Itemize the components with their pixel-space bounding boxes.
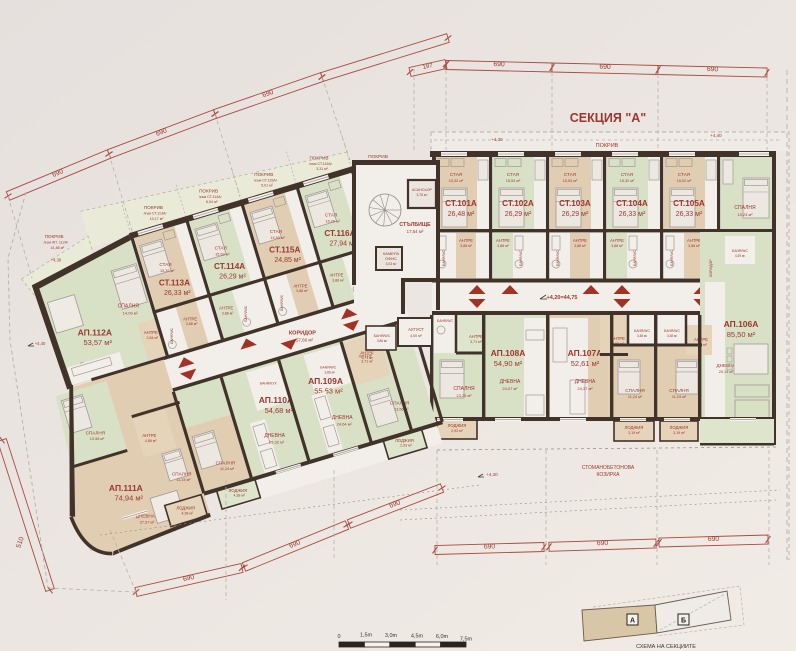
svg-text:СТЪЛБИЩЕ: СТЪЛБИЩЕ — [399, 222, 431, 228]
svg-text:85,50 м²: 85,50 м² — [727, 330, 756, 339]
svg-text:ПОКРИВ: ПОКРИВ — [596, 143, 619, 149]
svg-text:10,17 м²: 10,17 м² — [150, 217, 164, 221]
svg-text:СЕКЦИЯ "А": СЕКЦИЯ "А" — [570, 111, 647, 125]
svg-text:14,09 м²: 14,09 м² — [123, 310, 139, 315]
svg-text:СТАЯ: СТАЯ — [270, 229, 282, 234]
svg-text:2,84 м²: 2,84 м² — [146, 336, 158, 340]
svg-text:ЛОДЖИЯ: ЛОДЖИЯ — [229, 488, 248, 493]
svg-text:3,19 м²: 3,19 м² — [673, 431, 685, 435]
svg-text:20,14 м²: 20,14 м² — [719, 370, 734, 374]
svg-text:СТАЯ: СТАЯ — [564, 172, 576, 177]
svg-text:АП.110А: АП.110А — [259, 395, 293, 405]
svg-text:СПАЛНЯ: СПАЛНЯ — [216, 460, 235, 465]
svg-text:АП.112А: АП.112А — [78, 327, 112, 337]
svg-text:ПОКРИВ: ПОКРИВ — [309, 156, 328, 161]
svg-text:26,29 м²: 26,29 м² — [562, 211, 589, 218]
svg-text:3,31 м²: 3,31 м² — [316, 167, 328, 171]
svg-text:3,48 м²: 3,48 м² — [667, 334, 677, 338]
svg-text:СТ.103А: СТ.103А — [559, 199, 591, 208]
svg-text:3,88 м²: 3,88 м² — [296, 289, 308, 293]
svg-text:3,86 м²: 3,86 м² — [325, 371, 335, 375]
svg-text:7,5m: 7,5m — [460, 637, 473, 643]
svg-text:АНТРЕ: АНТРЕ — [610, 238, 624, 243]
svg-text:3,88 м²: 3,88 м² — [460, 244, 472, 248]
svg-text:4,38 м²: 4,38 м² — [233, 494, 245, 498]
svg-text:АНТРЕ: АНТРЕ — [496, 238, 510, 243]
svg-text:24,37 м²: 24,37 м² — [577, 386, 593, 391]
svg-text:СТ.102А: СТ.102А — [502, 199, 534, 208]
svg-text:СПАЛНЯ: СПАЛНЯ — [86, 430, 105, 435]
svg-text:690: 690 — [484, 543, 496, 550]
svg-text:15,32 м²: 15,32 м² — [160, 269, 175, 273]
svg-text:52,61 м²: 52,61 м² — [571, 359, 600, 368]
svg-text:СХЕМА НА СЕКЦИИТЕ: СХЕМА НА СЕКЦИИТЕ — [636, 644, 696, 650]
svg-text:3,0m: 3,0m — [385, 633, 398, 639]
svg-text:13,58 м²: 13,58 м² — [90, 437, 105, 441]
svg-text:5,01 м²: 5,01 м² — [261, 184, 273, 188]
svg-text:СТ.113А: СТ.113А — [159, 278, 190, 287]
svg-text:26,29 м²: 26,29 м² — [505, 211, 532, 218]
svg-text:15,53 м²: 15,53 м² — [506, 179, 521, 183]
svg-text:16,09 м²: 16,09 м² — [326, 219, 341, 223]
svg-text:15,53 м²: 15,53 м² — [215, 252, 230, 256]
svg-text:АП.109А: АП.109А — [308, 376, 343, 386]
svg-text:4,38 м²: 4,38 м² — [181, 511, 193, 515]
svg-text:6,0m: 6,0m — [436, 634, 449, 640]
svg-text:13,29 м²: 13,29 м² — [456, 393, 472, 398]
svg-text:АНТРЕ: АНТРЕ — [687, 238, 701, 243]
svg-text:ДНЕВНА: ДНЕВНА — [575, 379, 596, 385]
svg-text:ЛОДЖИЯ: ЛОДЖИЯ — [395, 438, 414, 443]
svg-text:СПАЛНЯ: СПАЛНЯ — [734, 205, 756, 211]
svg-text:СТАЯ: СТАЯ — [450, 172, 462, 177]
svg-text:690: 690 — [708, 536, 720, 543]
svg-text:ЛОДЖИЯ: ЛОДЖИЯ — [670, 425, 689, 430]
svg-text:4,88 м²: 4,88 м² — [145, 439, 157, 443]
svg-text:АНТРЕ: АНТРЕ — [573, 238, 587, 243]
svg-text:БАНЯ/WC: БАНЯ/WC — [732, 249, 748, 253]
svg-text:АНТРЕ: АНТРЕ — [183, 316, 197, 321]
svg-text:АНТРЕ: АНТРЕ — [293, 283, 307, 288]
svg-text:+4,40: +4,40 — [710, 133, 722, 138]
svg-text:Б: Б — [681, 618, 686, 625]
svg-text:4,5m: 4,5m — [411, 634, 424, 640]
svg-text:25,32 м²: 25,32 м² — [269, 440, 285, 445]
svg-text:СПАЛНЯ: СПАЛНЯ — [172, 471, 191, 476]
svg-text:БАНЯ/КУХ: БАНЯ/КУХ — [260, 382, 277, 386]
svg-text:15,32 м²: 15,32 м² — [449, 179, 464, 183]
svg-text:11,24 м²: 11,24 м² — [176, 478, 191, 482]
svg-text:11,24 м²: 11,24 м² — [220, 467, 235, 471]
svg-text:СТОМАНОБЕТОНОВА: СТОМАНОБЕТОНОВА — [582, 465, 635, 471]
svg-text:3,48 м²: 3,48 м² — [637, 334, 647, 338]
svg-text:26,33 м²: 26,33 м² — [164, 290, 191, 297]
svg-text:ДНЕВНА: ДНЕВНА — [717, 363, 737, 368]
svg-text:СПАЛНЯ: СПАЛНЯ — [390, 401, 409, 406]
svg-text:26,33 м²: 26,33 м² — [619, 211, 646, 218]
svg-text:57,66 м²: 57,66 м² — [296, 337, 314, 342]
svg-text:СТАЯ: СТАЯ — [678, 172, 690, 177]
svg-text:БАНЯ/WC: БАНЯ/WC — [244, 305, 248, 321]
svg-text:АСАНСЬОР: АСАНСЬОР — [412, 188, 432, 192]
svg-text:+4,30: +4,30 — [486, 472, 498, 477]
svg-text:24,64 м²: 24,64 м² — [337, 422, 353, 427]
svg-text:ЛОДЖИЯ: ЛОДЖИЯ — [625, 425, 644, 430]
svg-text:БАНЯ/WC: БАНЯ/WC — [320, 366, 336, 370]
svg-text:КОЗИРКА: КОЗИРКА — [597, 472, 621, 478]
svg-text:26,29 м²: 26,29 м² — [219, 273, 246, 280]
svg-text:ПОКРИВ: ПОКРИВ — [144, 205, 163, 210]
svg-text:ДНЕВНА: ДНЕВНА — [332, 415, 353, 421]
svg-text:15,23 м²: 15,23 м² — [737, 212, 753, 217]
svg-text:3,88 м²: 3,88 м² — [688, 244, 700, 248]
svg-text:СТАЯ: СТАЯ — [621, 172, 633, 177]
svg-text:3,88 м²: 3,88 м² — [332, 278, 344, 282]
svg-text:74,94 м²: 74,94 м² — [114, 494, 143, 503]
svg-text:АП.108А: АП.108А — [491, 348, 526, 358]
svg-text:24,85 м²: 24,85 м² — [274, 257, 301, 264]
svg-text:АНТРЕ: АНТРЕ — [360, 350, 374, 355]
svg-text:0: 0 — [337, 634, 340, 640]
svg-text:+4,20=44,75: +4,20=44,75 — [547, 295, 578, 301]
svg-text:/към СТ.114А/: /към СТ.114А/ — [199, 195, 222, 199]
svg-text:4,00 м²: 4,00 м² — [410, 334, 422, 338]
svg-text:КОРИДОР: КОРИДОР — [289, 331, 316, 337]
svg-text:СТ.105А: СТ.105А — [673, 199, 705, 208]
svg-text:БАНЯ/WC: БАНЯ/WC — [442, 250, 446, 266]
svg-text:ЛОДЖИЯ: ЛОДЖИЯ — [448, 423, 467, 428]
svg-text:17,54 м²: 17,54 м² — [407, 229, 424, 234]
svg-text:БАНЯ/WC: БАНЯ/WC — [374, 334, 391, 338]
svg-text:КОРИДОР: КОРИДОР — [709, 259, 713, 277]
svg-text:СТ.114А: СТ.114А — [214, 262, 245, 271]
svg-text:АНТРЕ: АНТРЕ — [219, 306, 233, 311]
svg-text:54,68 м²: 54,68 м² — [265, 406, 294, 415]
svg-text:3,88 м²: 3,88 м² — [222, 311, 234, 315]
svg-text:4,39 м²: 4,39 м² — [735, 254, 745, 258]
svg-text:АНТРЕ: АНТРЕ — [469, 334, 483, 339]
svg-text:690: 690 — [597, 540, 609, 547]
svg-text:+4,40: +4,40 — [35, 341, 46, 346]
svg-text:/към СТ.113А/: /към СТ.113А/ — [144, 212, 167, 216]
svg-text:11,24 м²: 11,24 м² — [672, 395, 687, 399]
svg-text:/към СТ.116А/: /към СТ.116А/ — [309, 162, 332, 166]
svg-text:АНТРЕ: АНТРЕ — [459, 238, 473, 243]
svg-text:41,88 м²: 41,88 м² — [51, 246, 65, 250]
svg-text:24,07 м²: 24,07 м² — [502, 386, 518, 391]
svg-text:/към АП. 112А/: /към АП. 112А/ — [44, 241, 68, 245]
svg-text:3,88 м²: 3,88 м² — [497, 244, 509, 248]
svg-text:БАНЯ/WC: БАНЯ/WC — [280, 294, 284, 310]
svg-text:АП.106А: АП.106А — [724, 319, 759, 329]
svg-text:ПОКРИВ: ПОКРИВ — [368, 154, 388, 160]
svg-text:53,57 м²: 53,57 м² — [83, 338, 112, 347]
svg-text:690: 690 — [493, 61, 505, 68]
svg-text:БАНЯ/WC: БАНЯ/WC — [556, 250, 560, 266]
svg-text:26,33 м²: 26,33 м² — [676, 211, 703, 218]
svg-text:ЛОДЖИЯ: ЛОДЖИЯ — [176, 506, 195, 511]
svg-text:15,53 м²: 15,53 м² — [563, 179, 578, 183]
svg-text:15,32 м²: 15,32 м² — [620, 179, 635, 183]
svg-text:ДНЕВНА: ДНЕВНА — [264, 433, 285, 439]
svg-text:СТ.116А: СТ.116А — [324, 229, 355, 238]
svg-text:БАНЯ/WC: БАНЯ/WC — [670, 250, 674, 266]
svg-text:2,93 м²: 2,93 м² — [400, 444, 412, 448]
svg-text:А: А — [630, 618, 635, 625]
svg-text:3,86 м²: 3,86 м² — [377, 339, 387, 343]
svg-text:1,5m: 1,5m — [360, 633, 373, 639]
svg-text:АП.107А: АП.107А — [568, 348, 603, 358]
svg-text:3,88 м²: 3,88 м² — [574, 244, 586, 248]
svg-text:СТ.101А: СТ.101А — [445, 199, 477, 208]
svg-text:ОФИС: ОФИС — [385, 256, 397, 261]
svg-text:БАНЯ/WC: БАНЯ/WC — [437, 319, 453, 323]
svg-text:11,24 м²: 11,24 м² — [628, 395, 643, 399]
svg-text:АУГУСТ: АУГУСТ — [408, 327, 424, 332]
svg-text:БАНЯ/WC: БАНЯ/WC — [664, 329, 680, 333]
svg-text:26,48 м²: 26,48 м² — [448, 211, 475, 218]
svg-text:3,03 м²: 3,03 м² — [385, 262, 397, 266]
svg-text:СПАЛНЯ: СПАЛНЯ — [453, 386, 475, 392]
svg-text:+4,30: +4,30 — [491, 137, 503, 142]
svg-text:СПАЛНЯ: СПАЛНЯ — [118, 304, 140, 310]
svg-text:3,76 м²: 3,76 м² — [416, 193, 428, 197]
svg-text:14,93 м²: 14,93 м² — [270, 236, 285, 240]
svg-text:БАНЯ/WC: БАНЯ/WC — [519, 250, 523, 266]
svg-text:15,02 м²: 15,02 м² — [677, 179, 692, 183]
svg-text:СТ.115А: СТ.115А — [269, 245, 300, 254]
svg-text:СПАЛНЯ: СПАЛНЯ — [669, 388, 688, 393]
svg-text:6,54 м²: 6,54 м² — [206, 200, 218, 204]
svg-text:2,93 м²: 2,93 м² — [451, 429, 463, 433]
svg-text:СТАЯ: СТАЯ — [507, 172, 519, 177]
svg-text:690: 690 — [599, 64, 611, 71]
svg-text:27,57 м²: 27,57 м² — [140, 520, 155, 524]
svg-text:СТАЯ: СТАЯ — [159, 262, 171, 267]
svg-text:СТАЯ: СТАЯ — [325, 213, 337, 218]
svg-text:БАНЯ/WC: БАНЯ/WC — [633, 250, 637, 266]
svg-text:СПАЛНЯ: СПАЛНЯ — [625, 388, 644, 393]
svg-text:690: 690 — [707, 66, 719, 73]
svg-text:54,90 м²: 54,90 м² — [494, 359, 523, 368]
svg-text:3,71 м²: 3,71 м² — [361, 356, 373, 360]
svg-text:АП.111А: АП.111А — [109, 483, 143, 493]
svg-text:3,88 м²: 3,88 м² — [186, 322, 198, 326]
svg-text:СТАЯ: СТАЯ — [215, 246, 227, 251]
svg-text:АНТРЕ: АНТРЕ — [330, 272, 344, 277]
svg-text:/към СТ.115А/: /към СТ.115А/ — [254, 178, 277, 182]
svg-text:3,88 м²: 3,88 м² — [611, 244, 623, 248]
svg-text:ПОКРИВ: ПОКРИВ — [254, 172, 273, 177]
svg-text:3,71 м²: 3,71 м² — [470, 340, 482, 344]
svg-text:ДНЕВНА: ДНЕВНА — [500, 379, 521, 385]
svg-text:СТ.104А: СТ.104А — [616, 199, 648, 208]
svg-text:ПОКРИВ: ПОКРИВ — [199, 189, 218, 194]
svg-text:АНТРЕ: АНТРЕ — [144, 330, 158, 335]
svg-text:3,19 м²: 3,19 м² — [628, 431, 640, 435]
svg-text:АНТРЕ: АНТРЕ — [142, 433, 156, 438]
svg-text:+4,30: +4,30 — [51, 257, 62, 262]
svg-text:ПОКРИВ: ПОКРИВ — [45, 234, 64, 239]
svg-text:БАНЯ/WC: БАНЯ/WC — [170, 327, 174, 343]
svg-text:БАНЯ/WC: БАНЯ/WC — [634, 329, 650, 333]
